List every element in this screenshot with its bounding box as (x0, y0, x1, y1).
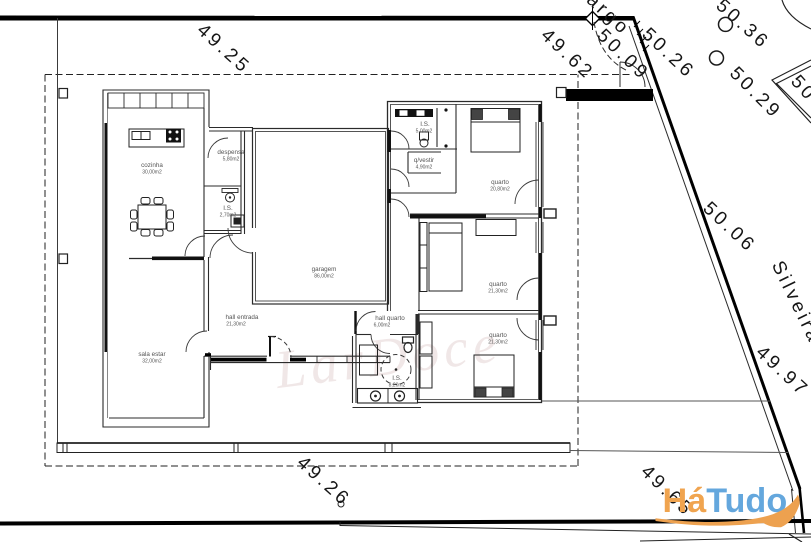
svg-text:q/vestir: q/vestir (414, 157, 434, 164)
svg-text:21,30m2: 21,30m2 (488, 289, 508, 295)
svg-text:5,00m2: 5,00m2 (416, 129, 433, 135)
svg-text:5,80m2: 5,80m2 (223, 157, 240, 163)
svg-text:quarto: quarto (491, 179, 509, 186)
svg-text:despensa: despensa (217, 149, 245, 156)
svg-text:sala estar: sala estar (138, 351, 165, 358)
svg-text:quarto: quarto (489, 281, 507, 288)
svg-text:hall entrada: hall entrada (226, 314, 259, 321)
svg-text:30,00m2: 30,00m2 (142, 170, 162, 176)
svg-text:I.S.: I.S. (420, 121, 430, 128)
svg-text:cozinha: cozinha (141, 162, 163, 169)
svg-text:21,30m2: 21,30m2 (226, 322, 246, 328)
svg-text:HáTudo: HáTudo (663, 482, 788, 520)
svg-text:garagem: garagem (312, 266, 337, 273)
svg-text:32,00m2: 32,00m2 (142, 359, 162, 365)
svg-text:quarto: quarto (489, 332, 507, 339)
svg-text:20,80m2: 20,80m2 (490, 187, 510, 193)
svg-text:hall quarto: hall quarto (375, 315, 405, 322)
svg-text:I.S.: I.S. (392, 375, 402, 382)
svg-text:2,70m2: 2,70m2 (220, 213, 237, 219)
svg-text:I.S.: I.S. (223, 205, 233, 212)
svg-text:6,00m2: 6,00m2 (374, 323, 391, 329)
svg-text:4,90m2: 4,90m2 (416, 165, 433, 171)
svg-text:8,20m2: 8,20m2 (389, 383, 406, 389)
svg-text:21,30m2: 21,30m2 (488, 340, 508, 346)
svg-text:86,00m2: 86,00m2 (314, 274, 334, 280)
